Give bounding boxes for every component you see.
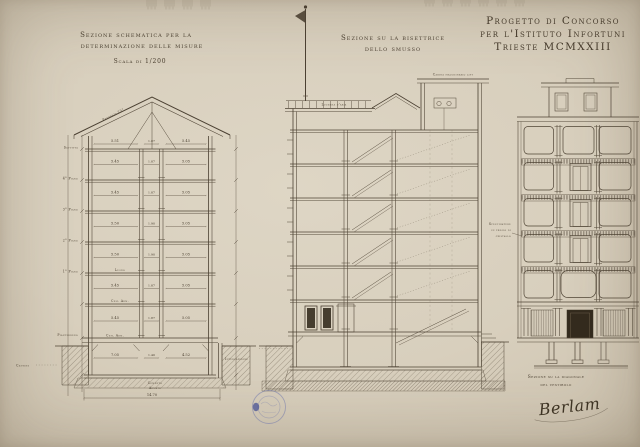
floor-label: Soffitta — [64, 146, 78, 150]
left-floor-labels: Soffitta 4° Piano 3° Piano 2° Piano 1° P… — [16, 146, 248, 368]
sheet-title-line1: Progetto di Concorso — [486, 15, 620, 27]
dim-value: 5.05 — [182, 191, 191, 195]
bisector-section-drawing: Sezione su la bisettrice dello smusso — [259, 5, 509, 391]
drawing-sheet: Progetto di Concorso per l'Istituto Info… — [0, 0, 640, 447]
dim-value: 5.05 — [182, 284, 191, 288]
dim-value: 5.45 — [182, 139, 191, 143]
dim-value: 1.87 — [148, 139, 155, 143]
schematic-section-drawing: Sezione schematica per la determinazione… — [16, 31, 256, 401]
dim-value: 5.05 — [182, 253, 191, 257]
glass-note-line2: in fregio di — [491, 228, 511, 232]
footing-label-line2: Armato — [148, 386, 161, 390]
intercapedine-label: Intercapedine — [225, 357, 248, 361]
dim-value: 5.45 — [111, 160, 120, 164]
dim-value: 1.90 — [148, 222, 155, 226]
dim-value: 4.52 — [182, 353, 190, 357]
left-title-line1: Sezione schematica per la — [80, 31, 192, 39]
dim-value: 5.45 — [111, 284, 120, 288]
floor-label: 4° Piano — [63, 177, 78, 181]
architectural-drawing: Progetto di Concorso per l'Istituto Info… — [0, 0, 640, 447]
vestibule-diagonal-section-drawing: Specchiature in fregio di cristallo — [489, 79, 639, 425]
total-width-dim: 14.70 — [147, 393, 158, 397]
middle-roofline: Cabina macchinario lift Lucerna d'aria — [285, 73, 489, 131]
dim-value: 5.45 — [111, 191, 120, 195]
right-facade-frame — [517, 117, 639, 338]
dim-value: 5.45 — [111, 316, 120, 320]
right-title-line2: del vestibolo — [540, 383, 572, 388]
glass-note-line1: Specchiature — [489, 222, 511, 226]
right-basement-columns — [534, 342, 628, 368]
glass-note-line3: cristallo — [496, 234, 511, 238]
lift-cabin-label: Cabina macchinario lift — [433, 73, 474, 77]
dim-value: 5.05 — [182, 222, 191, 226]
floor-label: Pianterreno — [57, 333, 78, 337]
left-structure — [74, 136, 226, 388]
left-scale-note: Scala di 1/200 — [114, 58, 167, 65]
dim-value: 5.05 — [182, 316, 191, 320]
middle-ground-floor — [305, 304, 469, 345]
dim-value: 1.87 — [148, 316, 155, 320]
dim-value: 5.50 — [111, 253, 120, 257]
dim-value: 1.40 — [148, 353, 155, 357]
slab-material-label: Cem. Arm. — [106, 334, 124, 338]
right-glass-note: Specchiature in fregio di cristallo — [489, 222, 522, 238]
middle-basement — [285, 337, 486, 382]
floor-label: 2° Piano — [63, 239, 78, 243]
dim-value: 7.05 — [111, 353, 120, 357]
left-room-dimensions: 5.51 1.87 5.45 5.45 1.87 5.05 5.45 1.87 … — [94, 139, 206, 358]
dim-value: 1.90 — [148, 253, 155, 257]
ink-stamp — [253, 391, 286, 424]
dim-value: 5.50 — [111, 222, 120, 226]
svg-text:Berlam: Berlam — [537, 394, 601, 419]
dim-value: 1.87 — [148, 284, 155, 288]
middle-title-line2: dello smusso — [365, 45, 421, 53]
sheet-title-line3: Trieste MCMXXIII — [494, 41, 611, 53]
top-edge-watermark — [146, 0, 525, 10]
middle-stairs-and-windows — [287, 135, 470, 300]
dim-value: 5.05 — [182, 160, 191, 164]
dim-value: 1.87 — [148, 160, 155, 164]
footing-label-line1: Cemento — [148, 381, 163, 385]
flagpole — [295, 5, 308, 101]
right-title-line1: Sezione su la diagonale — [528, 374, 585, 380]
left-roof-pitch-note: Pendenza 25° — [102, 107, 125, 121]
right-penthouse — [541, 79, 619, 118]
middle-title-line1: Sezione su la bisettrice — [341, 34, 445, 42]
skylight-label: Lucerna d'aria — [321, 103, 346, 107]
slab-material-label: Legno — [115, 268, 125, 272]
dim-value: 5.51 — [111, 139, 119, 143]
floor-label-cantine: Cantine — [16, 364, 30, 368]
architect-signature: Berlam — [533, 393, 609, 424]
slab-material-label: Cem. Arm. — [111, 299, 129, 303]
sheet-title: Progetto di Concorso per l'Istituto Info… — [480, 15, 626, 53]
floor-label: 1° Piano — [63, 270, 78, 274]
right-floor-bands — [522, 125, 636, 302]
right-ground-floor — [517, 302, 639, 342]
floor-label: 3° Piano — [63, 208, 78, 212]
dim-value: 1.87 — [148, 191, 155, 195]
sheet-title-line2: per l'Istituto Infortuni — [480, 28, 626, 40]
left-title-line2: determinazione delle misure — [81, 42, 204, 50]
